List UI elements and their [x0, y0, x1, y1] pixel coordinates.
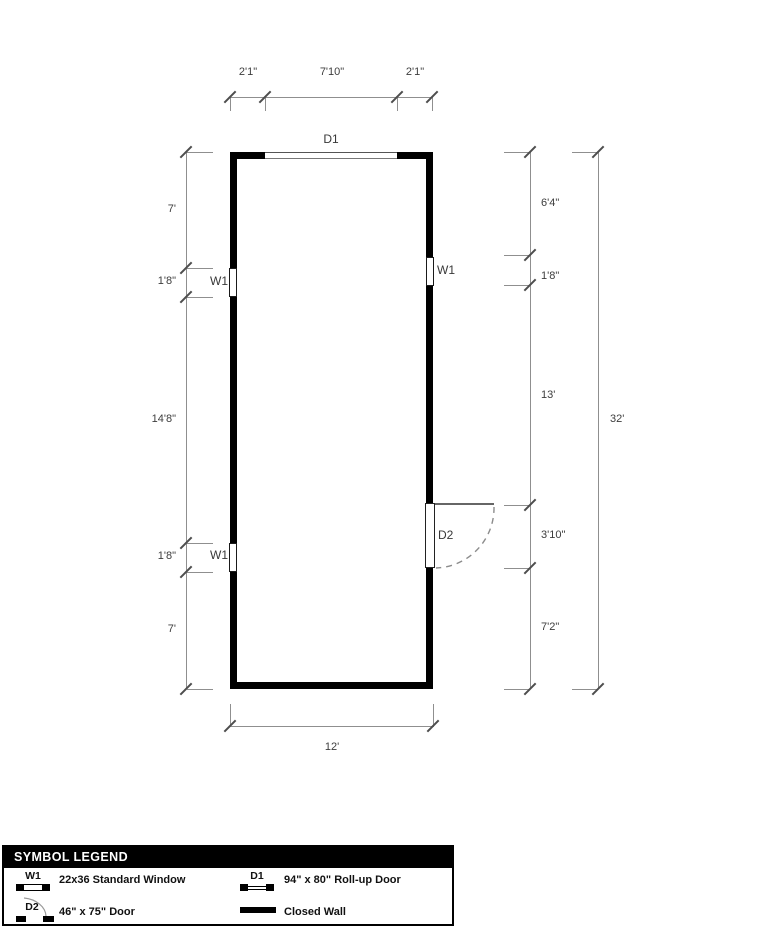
dim-top-left: 2'1" — [226, 66, 270, 78]
dimension-line — [230, 726, 433, 727]
legend-w1-code: W1 — [16, 870, 50, 882]
extension-line — [397, 97, 398, 111]
dim-right-3: 13' — [541, 389, 555, 401]
dimension-line — [230, 97, 433, 98]
dimension-line — [530, 152, 531, 689]
window-w1-left-top-label: W1 — [192, 274, 228, 288]
door-d2-label: D2 — [438, 528, 453, 542]
extension-line — [187, 268, 213, 269]
legend-d1-label: 94" x 80" Roll-up Door — [284, 874, 401, 886]
dim-left-2: 1'8" — [120, 275, 176, 287]
window-w1-right-label: W1 — [437, 263, 455, 277]
extension-line — [432, 97, 433, 111]
door-leaf-line — [433, 503, 494, 505]
legend-d2-label: 46" x 75" Door — [59, 906, 135, 918]
door-d2 — [425, 503, 435, 568]
legend-header: SYMBOL LEGEND — [4, 847, 452, 868]
extension-line — [265, 97, 266, 111]
dimension-line — [598, 152, 599, 689]
window-w1-right — [426, 257, 434, 286]
dim-left-4: 1'8" — [120, 550, 176, 562]
dim-right-5: 7'2" — [541, 621, 559, 633]
extension-line — [187, 297, 213, 298]
dim-left-3: 14'8" — [120, 413, 176, 425]
dim-bottom: 12' — [310, 741, 354, 753]
extension-line — [187, 572, 213, 573]
dim-right-total: 32' — [610, 413, 624, 425]
dim-right-4: 3'10" — [541, 529, 565, 541]
extension-line — [230, 97, 231, 111]
rollup-door-label: D1 — [299, 132, 363, 146]
window-w1-left-top — [229, 268, 237, 297]
building-outline — [230, 152, 433, 689]
legend-title: SYMBOL LEGEND — [14, 850, 128, 864]
dim-right-2: 1'8" — [541, 270, 559, 282]
dim-top-right: 2'1" — [393, 66, 437, 78]
extension-line — [187, 689, 213, 690]
dimension-line — [186, 152, 187, 689]
symbol-legend: SYMBOL LEGEND W1 22x36 Standard Window D… — [2, 845, 454, 926]
window-w1-left-bottom — [229, 543, 237, 572]
floor-plan-canvas: 2'1" 7'10" 2'1" D1 W1 W1 W1 D2 7' 1'8" 1… — [0, 0, 763, 929]
legend-wall-label: Closed Wall — [284, 906, 346, 918]
window-w1-left-bottom-label: W1 — [192, 548, 228, 562]
legend-w1-label: 22x36 Standard Window — [59, 874, 185, 886]
rollup-door-d1 — [265, 152, 397, 159]
window-symbol-icon — [16, 884, 50, 891]
legend-d2-code: D2 — [18, 901, 46, 913]
dim-right-1: 6'4" — [541, 197, 559, 209]
closed-wall-symbol-icon — [240, 907, 276, 913]
dim-left-1: 7' — [120, 203, 176, 215]
legend-d1-code: D1 — [240, 870, 274, 882]
dim-top-center: 7'10" — [304, 66, 360, 78]
extension-line — [187, 543, 213, 544]
dim-left-5: 7' — [120, 623, 176, 635]
extension-line — [187, 152, 213, 153]
rollup-door-symbol-icon — [240, 884, 274, 891]
